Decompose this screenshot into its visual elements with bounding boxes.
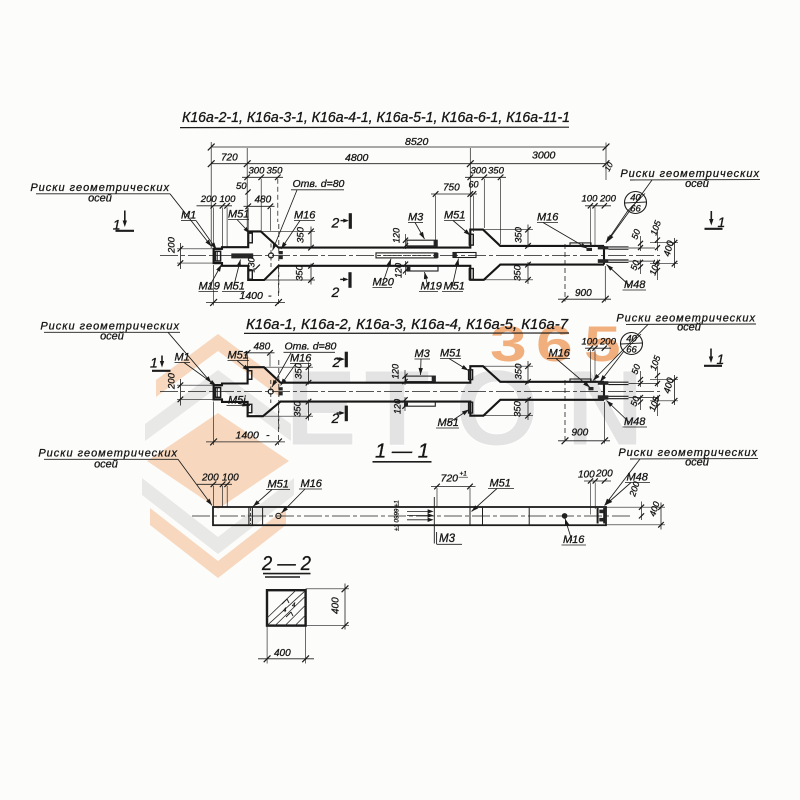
- svg-text:200: 200: [200, 194, 218, 205]
- svg-text:200: 200: [201, 473, 219, 484]
- svg-text:осей: осей: [94, 459, 118, 471]
- svg-text:М48: М48: [627, 472, 649, 484]
- svg-text:М51: М51: [444, 210, 465, 222]
- svg-text:-: -: [268, 290, 272, 302]
- svg-text:2: 2: [331, 215, 340, 231]
- svg-text:720: 720: [441, 473, 459, 485]
- svg-text:М51: М51: [444, 281, 465, 293]
- svg-text:М16: М16: [294, 210, 316, 222]
- svg-text:350: 350: [293, 400, 304, 417]
- svg-text:100: 100: [220, 194, 237, 205]
- svg-text:200: 200: [595, 469, 613, 480]
- svg-text:М3: М3: [439, 533, 456, 545]
- svg-text:-: -: [266, 430, 270, 442]
- svg-text:1: 1: [718, 214, 726, 230]
- svg-text:Отв. d=80: Отв. d=80: [293, 178, 345, 190]
- svg-text:40: 40: [626, 334, 637, 345]
- svg-text:2 — 2: 2 — 2: [261, 553, 311, 575]
- svg-text:М51: М51: [228, 350, 249, 362]
- svg-text:М1: М1: [181, 210, 196, 222]
- svg-text:100: 100: [222, 473, 239, 484]
- svg-text:200: 200: [167, 372, 178, 390]
- svg-text:К16а-1, К16а-2, К16а-3, К16а: К16а-1, К16а-2, К16а-3, К16а-4, К16а-5, …: [246, 317, 569, 333]
- svg-text:4800: 4800: [345, 152, 369, 164]
- svg-text:2: 2: [332, 354, 341, 370]
- svg-text:±1 0999 ±1: ±1 0999 ±1: [394, 500, 401, 531]
- svg-text:120: 120: [392, 228, 402, 243]
- svg-text:300: 300: [471, 166, 488, 177]
- svg-text:66: 66: [630, 204, 641, 215]
- svg-text:М16: М16: [537, 212, 559, 224]
- svg-text:осей: осей: [685, 457, 709, 469]
- svg-text:1 — 1: 1 — 1: [375, 441, 429, 463]
- svg-text:осей: осей: [88, 193, 112, 205]
- svg-text:130: 130: [247, 257, 257, 272]
- svg-text:1: 1: [717, 351, 725, 367]
- svg-text:М51: М51: [490, 478, 511, 490]
- svg-text:60: 60: [469, 180, 479, 190]
- svg-text:М51: М51: [268, 479, 289, 491]
- svg-text:120: 120: [391, 364, 401, 379]
- svg-text:300: 300: [249, 166, 266, 177]
- svg-text:750: 750: [443, 183, 460, 194]
- svg-text:М16: М16: [301, 478, 323, 490]
- svg-text:К16а-2-1, К16а-3-1, К16а-4-1,: К16а-2-1, К16а-3-1, К16а-4-1, К16а-5-1, …: [182, 110, 570, 126]
- svg-text:3000: 3000: [532, 150, 556, 162]
- svg-text:М1: М1: [175, 352, 190, 364]
- svg-text:100: 100: [582, 337, 599, 348]
- svg-text:350: 350: [488, 166, 505, 177]
- svg-text:100: 100: [578, 470, 595, 481]
- svg-text:200: 200: [599, 194, 617, 205]
- svg-text:200: 200: [599, 337, 617, 348]
- svg-text:900: 900: [572, 428, 589, 439]
- svg-text:М16: М16: [549, 348, 571, 360]
- svg-text:50: 50: [236, 181, 247, 192]
- svg-text:40: 40: [630, 193, 641, 204]
- svg-text:осей: осей: [677, 322, 701, 334]
- svg-text:480: 480: [254, 342, 271, 353]
- svg-text:350: 350: [267, 166, 284, 177]
- svg-text:М48: М48: [624, 279, 646, 291]
- svg-text:М3: М3: [415, 348, 431, 360]
- svg-text:350: 350: [514, 363, 525, 380]
- svg-text:350: 350: [295, 264, 306, 281]
- svg-text:М19: М19: [421, 281, 442, 293]
- svg-text:М16: М16: [563, 534, 585, 546]
- svg-text:120: 120: [393, 399, 403, 414]
- svg-text:200: 200: [167, 236, 178, 254]
- svg-text:М3: М3: [408, 212, 424, 224]
- svg-text:1400: 1400: [236, 430, 260, 442]
- svg-text:350: 350: [296, 226, 307, 243]
- svg-text:М51: М51: [228, 209, 249, 221]
- svg-text:350: 350: [294, 362, 305, 379]
- svg-text:М20: М20: [373, 277, 395, 289]
- svg-text:350: 350: [513, 264, 524, 281]
- svg-text:М48: М48: [624, 416, 646, 428]
- svg-text:720: 720: [221, 153, 238, 164]
- svg-text:1: 1: [150, 355, 158, 371]
- svg-text:2: 2: [331, 284, 340, 300]
- svg-text:100: 100: [582, 194, 599, 205]
- svg-text:400: 400: [331, 597, 342, 614]
- svg-text:400: 400: [274, 648, 291, 659]
- svg-text:1400: 1400: [240, 290, 264, 302]
- svg-text:+1: +1: [460, 471, 468, 478]
- svg-text:66: 66: [626, 345, 637, 356]
- svg-text:8520: 8520: [405, 136, 429, 148]
- svg-text:480: 480: [255, 195, 272, 206]
- svg-text:120: 120: [394, 263, 404, 278]
- svg-text:М16: М16: [290, 353, 312, 365]
- svg-text:900: 900: [575, 288, 592, 299]
- svg-text:350: 350: [514, 226, 525, 243]
- svg-text:Отв. d=80: Отв. d=80: [285, 341, 337, 353]
- svg-text:М51: М51: [440, 348, 461, 360]
- svg-text:350: 350: [513, 400, 524, 417]
